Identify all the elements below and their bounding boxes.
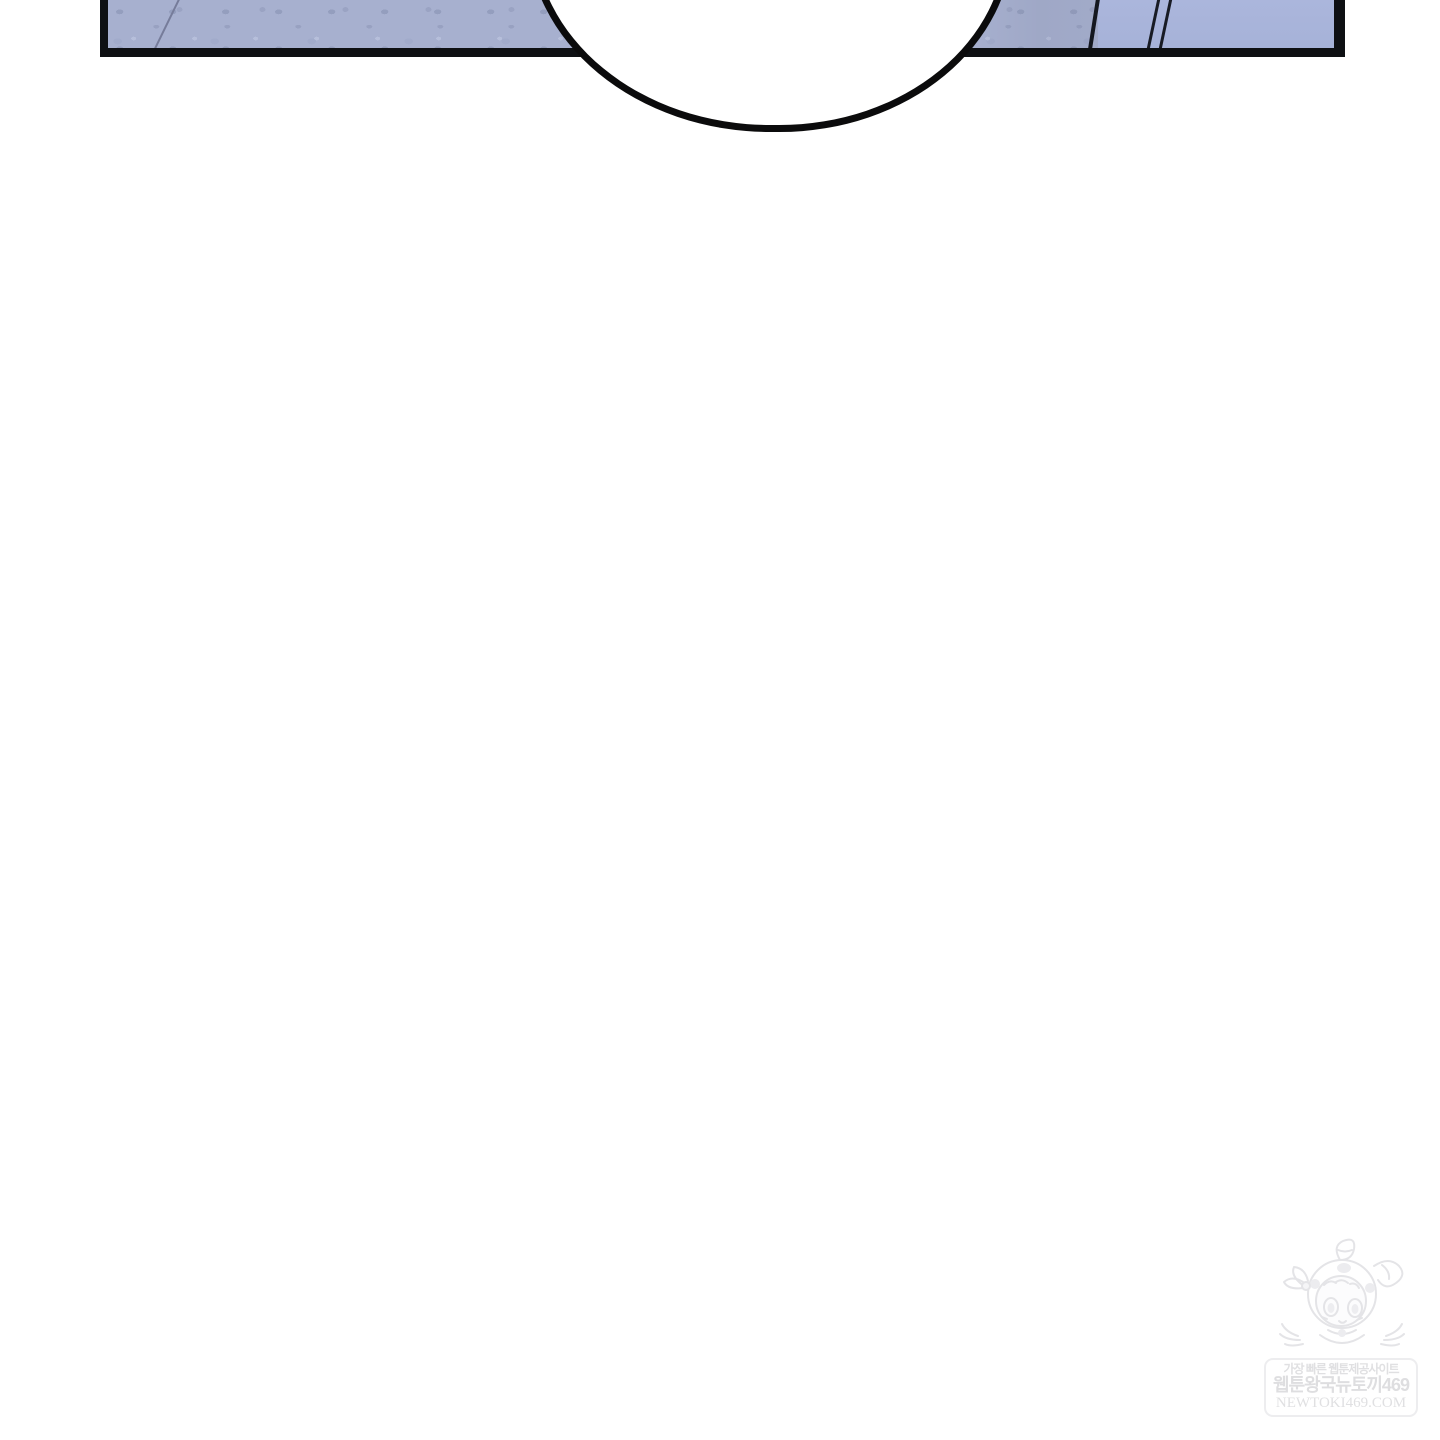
- panel-wall-smooth: [1098, 0, 1334, 48]
- mascot-bow: [1284, 1267, 1310, 1290]
- mascot-face: [1316, 1276, 1366, 1326]
- bunny-hood-girl-mascot-icon: [1270, 1238, 1420, 1356]
- watermark-tagline: 가장 빠른 웹툰제공사이트: [1266, 1362, 1416, 1376]
- webtoon-page: 가장 빠른 웹툰제공사이트 웹툰왕국뉴토끼469 NEWTOKI469.COM: [0, 0, 1440, 1440]
- site-watermark: 가장 빠른 웹툰제공사이트 웹툰왕국뉴토끼469 NEWTOKI469.COM: [1258, 1238, 1434, 1432]
- mascot-top-ribbon: [1337, 1240, 1355, 1260]
- mascot-body: [1320, 1329, 1364, 1343]
- speech-bubble: [527, 0, 1013, 132]
- watermark-text-box: 가장 빠른 웹툰제공사이트 웹툰왕국뉴토끼469 NEWTOKI469.COM: [1264, 1358, 1418, 1417]
- watermark-site-name: 웹툰왕국뉴토끼469: [1266, 1376, 1416, 1395]
- watermark-domain: NEWTOKI469.COM: [1266, 1395, 1416, 1412]
- mascot-right-ear: [1374, 1261, 1402, 1286]
